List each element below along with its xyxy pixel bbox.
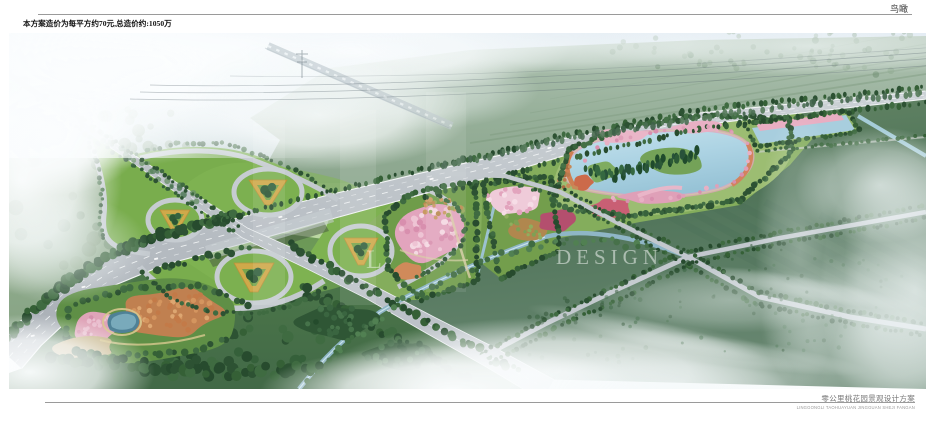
svg-text:LINGGONGLI TAOHUAYUAN JINGGUAN: LINGGONGLI TAOHUAYUAN JINGGUAN SHEJI FAN…: [797, 405, 915, 410]
svg-text:L: L: [366, 245, 382, 274]
svg-text:本方案造价为每平方约70元,总造价约:1050万: 本方案造价为每平方约70元,总造价约:1050万: [23, 18, 172, 28]
svg-text:鸟瞰: 鸟瞰: [890, 3, 908, 14]
svg-text:零公里桃花园景观设计方案: 零公里桃花园景观设计方案: [821, 393, 915, 403]
svg-text:DESIGN: DESIGN: [556, 245, 663, 269]
